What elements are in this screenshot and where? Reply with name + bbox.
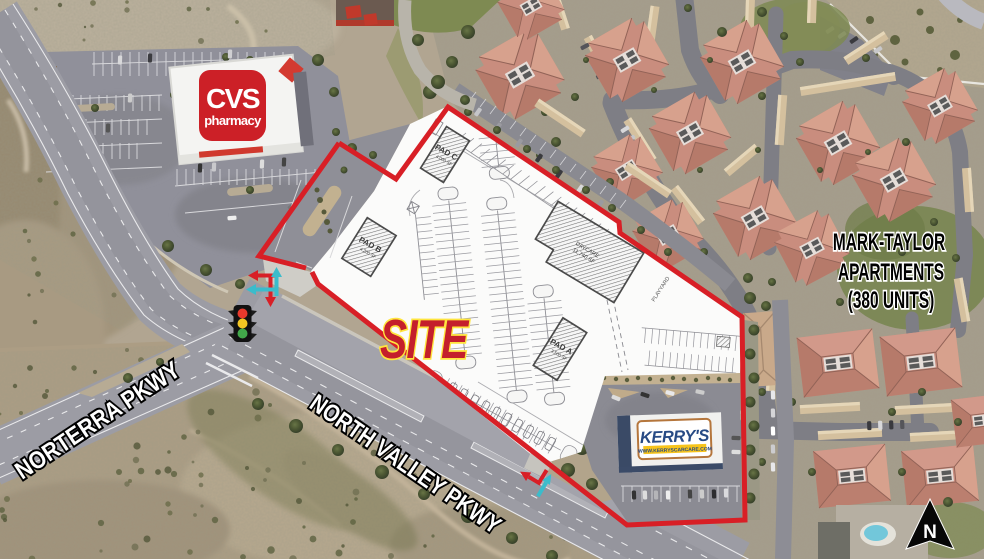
svg-text:(380 UNITS): (380 UNITS) bbox=[848, 286, 935, 314]
svg-text:APARTMENTS: APARTMENTS bbox=[838, 258, 944, 286]
svg-text:SITE: SITE bbox=[380, 309, 470, 370]
svg-text:MARK-TAYLOR: MARK-TAYLOR bbox=[833, 228, 945, 256]
svg-text:KERRY'S: KERRY'S bbox=[640, 427, 710, 447]
svg-text:pharmacy: pharmacy bbox=[204, 113, 262, 128]
svg-text:CVS: CVS bbox=[206, 83, 260, 114]
svg-text:N: N bbox=[923, 522, 937, 543]
